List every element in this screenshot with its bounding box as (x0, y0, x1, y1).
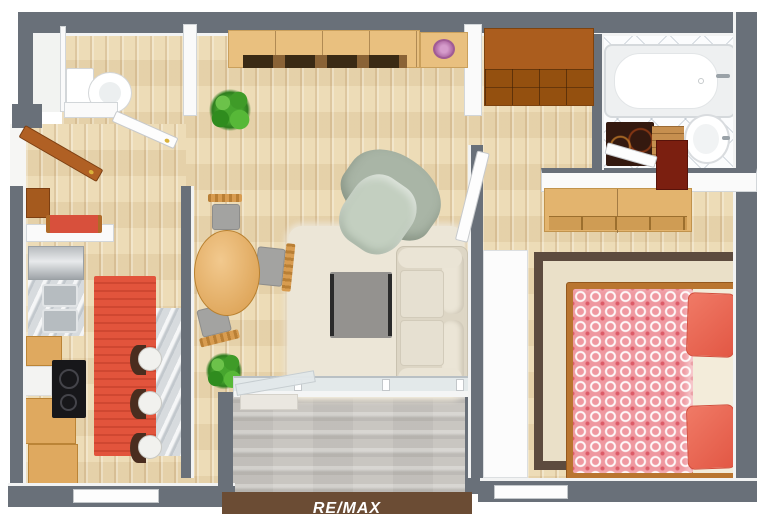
sideboard-end (420, 32, 468, 68)
bedroom-window (494, 485, 568, 499)
kitchen-white-appliance (24, 366, 52, 396)
fridge (28, 246, 84, 280)
sideboard (228, 30, 420, 68)
dresser-drawers (549, 216, 687, 230)
chair-back (208, 194, 242, 202)
sofa (396, 246, 468, 390)
bar-stool-3 (130, 430, 166, 466)
bathtub-faucet-icon (716, 74, 730, 78)
stool-seat (138, 347, 162, 371)
dining-table (194, 230, 260, 316)
cooktop (52, 360, 86, 418)
stool-seat (138, 391, 162, 415)
double-bed (566, 282, 742, 480)
sofa-seat-2 (400, 320, 444, 366)
cooktop-ring-1 (59, 369, 79, 389)
plant-living-top (206, 86, 254, 134)
wall-wc-right (183, 24, 197, 116)
wall-bottom-left (8, 483, 235, 507)
bar-stool-1 (130, 342, 166, 378)
window-handle-3 (456, 379, 464, 391)
entry-hall-shoe-cabinet (26, 188, 50, 218)
wall-niche-divider (60, 26, 66, 112)
dresser (544, 188, 692, 232)
wall-wc-bottom (64, 102, 118, 118)
wall-left-lower (10, 186, 26, 507)
sideboard-shelf (243, 55, 407, 68)
bathroom-red-cabinet (656, 140, 688, 190)
balcony-railing: RE/MAX (222, 492, 472, 514)
wall-bottom-bedroom (478, 478, 757, 502)
bed-duvet (573, 289, 693, 473)
chair-seat (212, 204, 240, 230)
wc-door-handle (164, 138, 170, 144)
wall-left-jog (12, 104, 42, 128)
cooktop-ring-2 (60, 394, 77, 411)
bathtub (604, 44, 736, 118)
bathtub-drain-icon (698, 78, 704, 84)
window-handle-2 (382, 379, 390, 391)
wall-left-top (18, 12, 33, 112)
sink-bowl-inner (693, 124, 719, 154)
bed-pillow-2 (686, 404, 736, 470)
coffee-table-rail-right (388, 274, 392, 336)
entry-door-handle (88, 169, 94, 175)
bedroom-white-wardrobe (483, 250, 528, 478)
bed-pillow-1 (686, 292, 736, 358)
sink-faucet-icon (722, 136, 730, 140)
floor-niche (33, 26, 63, 112)
toilet-bowl-inner (99, 82, 121, 104)
wall-kitchen-living-divider (181, 186, 194, 478)
sofa-seat-1 (400, 270, 444, 318)
coffee-table (330, 272, 392, 338)
dining-chair-top (206, 194, 244, 232)
wardrobe-panel-grid (485, 69, 593, 105)
wall-right (733, 12, 757, 502)
coffee-table-rail-left (330, 274, 334, 336)
floor-plan: RE/MAX (0, 0, 770, 527)
sofa-armrest-top (398, 248, 462, 268)
kitchen-window (73, 489, 159, 503)
remax-watermark: RE/MAX (222, 500, 472, 514)
wall-balcony-left (218, 392, 233, 504)
bar-stool-2 (130, 386, 166, 422)
sink-basin-2 (42, 309, 78, 333)
hall-wardrobe-cabinet (484, 28, 594, 106)
pedestal-sink (684, 114, 730, 164)
kitchen-cabinet-3 (28, 444, 78, 488)
decor-bowl (433, 39, 455, 59)
sink-basin-1 (42, 284, 78, 307)
stool-seat (138, 435, 162, 459)
kitchen-red-bench (46, 215, 102, 233)
balcony-door-threshold (240, 394, 298, 410)
